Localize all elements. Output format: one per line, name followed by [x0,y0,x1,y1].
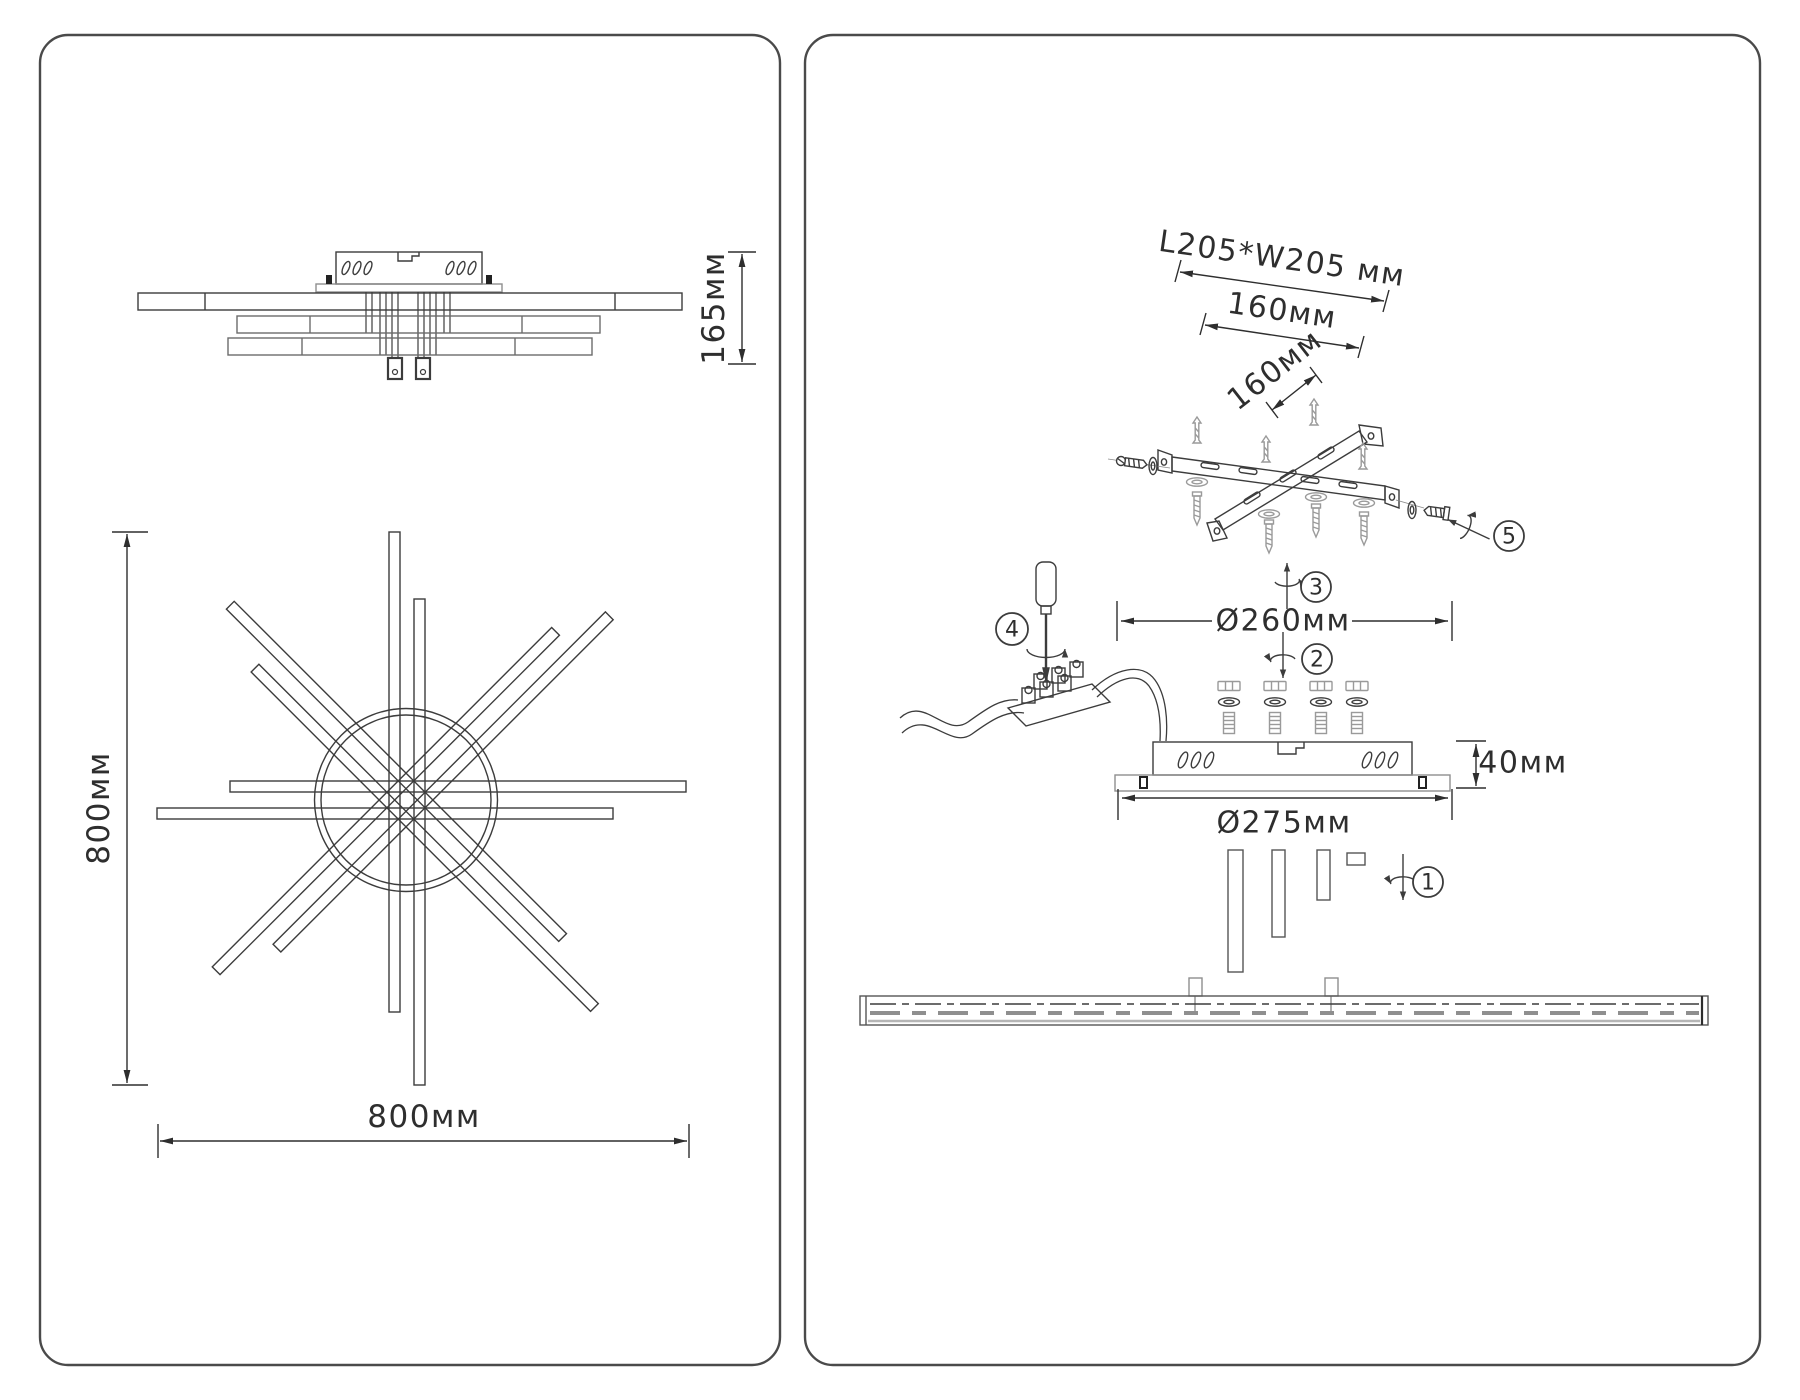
left-panel: 165мм 800мм [40,35,780,1365]
side-view [138,252,682,379]
page: 165мм 800мм [0,0,1800,1400]
halo-ring-icon [315,709,498,892]
lift-rotation-icon [1275,563,1299,609]
bracket-screw-right [1396,500,1495,550]
wall-anchor-icon [1262,436,1270,462]
mounting-rail [860,978,1708,1025]
canopy-hardware [1218,682,1368,734]
suspension-rods [366,292,450,358]
threaded-post-icon [1270,713,1281,734]
mounting-screw-icon [1360,512,1369,545]
wall-anchor-icon [1310,399,1318,425]
mounting-screw-icon [1193,492,1202,525]
canopy-flange [316,284,502,292]
threaded-post-icon [1352,713,1363,734]
mounting-screw-icon [1312,504,1321,537]
washer-icon [1187,478,1208,486]
step-3-badge: 3 [1301,572,1331,602]
screw-icon [1423,504,1450,520]
plan-width-dimension: 800мм [158,1099,689,1158]
light-bars-side [138,293,682,355]
plan-width-label: 800мм [367,1099,480,1135]
step-4-badge: 4 [996,613,1028,645]
threaded-post-icon [1316,713,1327,734]
canopy-base-label: Ø275мм [1216,806,1351,841]
step-5-badge: 5 [1494,521,1524,551]
led-bars-exploded [1228,850,1365,972]
step-4-number: 4 [1005,618,1019,643]
canopy-base-flange [1115,775,1450,791]
canopy-height-label: 40мм [1478,746,1567,781]
bracket-circle-dimension: Ø260мм [1117,601,1452,641]
wall-anchor-icon [1193,417,1201,443]
drawing-canvas: 165мм 800мм [0,0,1800,1400]
nut-icon [1218,682,1240,691]
bracket-spacing-long-label: 160мм [1225,286,1339,336]
light-bar [273,612,613,952]
attach-rotation-icon [1391,854,1415,900]
terminal-block-icon [1008,661,1110,727]
light-bars-plan [157,532,686,1085]
rail-clip-icon [1189,978,1202,996]
washer-icon [1306,493,1327,501]
light-bar [230,781,686,792]
right-panel: L205*W205 мм 160мм 160мм [805,35,1760,1365]
side-height-label: 165мм [696,251,732,364]
step-1-number: 1 [1421,871,1435,896]
led-bar [1347,853,1365,865]
bracket-overall-label: L205*W205 мм [1156,224,1407,294]
screwdriver-icon [1027,562,1065,681]
washer-icon [1347,698,1368,706]
hook-notch [398,252,419,261]
canopy-base [1115,742,1450,791]
screw-rotation-icon [1443,508,1495,550]
mount-clamp-icon [388,358,430,379]
screw-icon [1125,458,1148,469]
nut-icon [1264,682,1286,691]
rail-clip-icon [1325,978,1338,996]
led-bar [1317,850,1330,900]
flange-clip-icon [1140,777,1147,788]
washer-icon [1265,698,1286,706]
flange-clip-icon [486,275,492,284]
washer-icon [1219,698,1240,706]
washer-icon [1311,698,1332,706]
washer-icon [1354,499,1375,507]
wall-anchor-icon [1359,443,1367,469]
side-height-dimension: 165мм [696,251,756,364]
step-2-number: 2 [1310,648,1324,673]
light-bar [389,532,400,1012]
bracket-spacing-dimension-short: 160мм [1221,322,1329,418]
washer-icon [1259,510,1280,518]
nut-icon [1310,682,1332,691]
left-panel-border [40,35,780,1365]
plan-view [157,532,686,1085]
led-bar [1228,850,1243,972]
plan-height-label: 800мм [81,751,117,864]
canopy-box-side [316,252,502,292]
hook-notch [1278,742,1304,754]
canopy-base-dimension: Ø275мм [1118,789,1452,841]
bracket-screw-left [1108,457,1170,475]
light-bar [414,599,425,1085]
step-3-number: 3 [1309,576,1323,601]
step-1-badge: 1 [1413,867,1443,897]
plan-height-dimension: 800мм [81,532,148,1085]
flange-clip-icon [326,275,332,284]
mounting-screw-icon [1265,520,1274,553]
flange-clip-icon [1419,777,1426,788]
canopy-height-dimension: 40мм [1456,741,1568,788]
washer-icon [1408,502,1416,519]
mounting-screws [1187,478,1375,553]
light-bar [212,627,559,974]
step-2-badge: 2 [1302,644,1332,674]
led-bar [1272,850,1285,937]
fasten-rotation-icon [1271,632,1295,678]
threaded-post-icon [1224,713,1235,734]
step-5-number: 5 [1502,525,1516,550]
terminal-cells [1022,661,1083,704]
right-panel-border [805,35,1760,1365]
louver-slots-icon [340,260,477,275]
nut-icon [1346,682,1368,691]
